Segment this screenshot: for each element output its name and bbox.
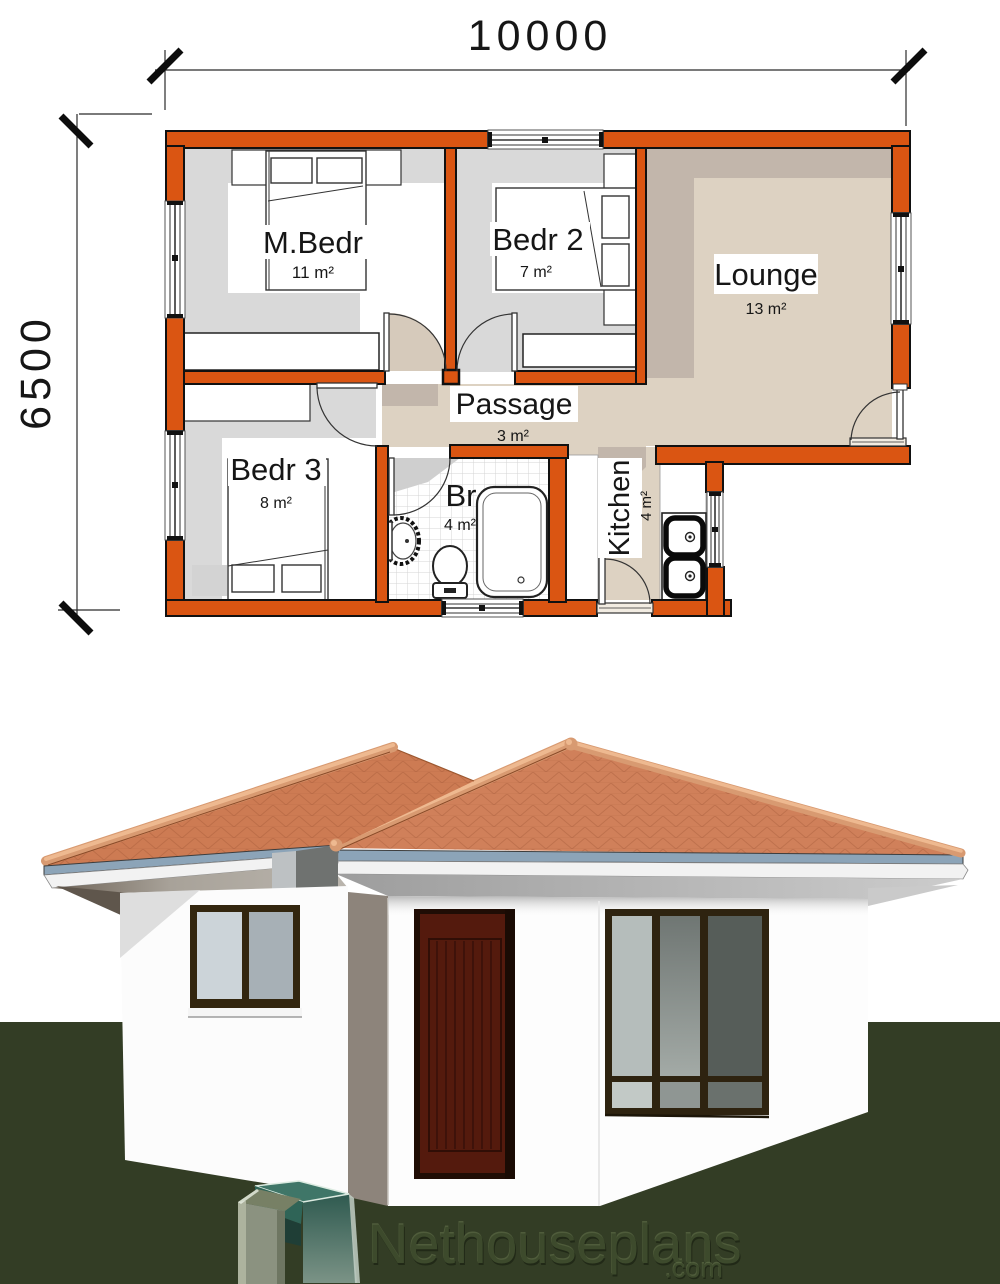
svg-text:13 m²: 13 m² — [746, 301, 788, 318]
svg-text:7 m²: 7 m² — [520, 264, 553, 281]
svg-text:Passage: Passage — [456, 388, 573, 421]
svg-text:4 m²: 4 m² — [638, 491, 655, 521]
svg-text:Br: Br — [446, 478, 477, 513]
svg-text:4 m²: 4 m² — [444, 517, 477, 534]
svg-text:11 m²: 11 m² — [292, 263, 335, 282]
svg-text:Kitchen: Kitchen — [604, 460, 636, 557]
svg-text:Bedr 2: Bedr 2 — [492, 222, 583, 257]
svg-text:Bedr 3: Bedr 3 — [230, 452, 321, 487]
svg-text:Lounge: Lounge — [714, 257, 817, 292]
svg-text:M.Bedr: M.Bedr — [263, 225, 363, 260]
svg-text:8 m²: 8 m² — [260, 495, 293, 512]
svg-text:3 m²: 3 m² — [497, 428, 530, 445]
svg-text:.com: .com — [664, 1254, 723, 1284]
svg-text:6500: 6500 — [12, 314, 60, 430]
svg-text:10000: 10000 — [468, 12, 613, 60]
